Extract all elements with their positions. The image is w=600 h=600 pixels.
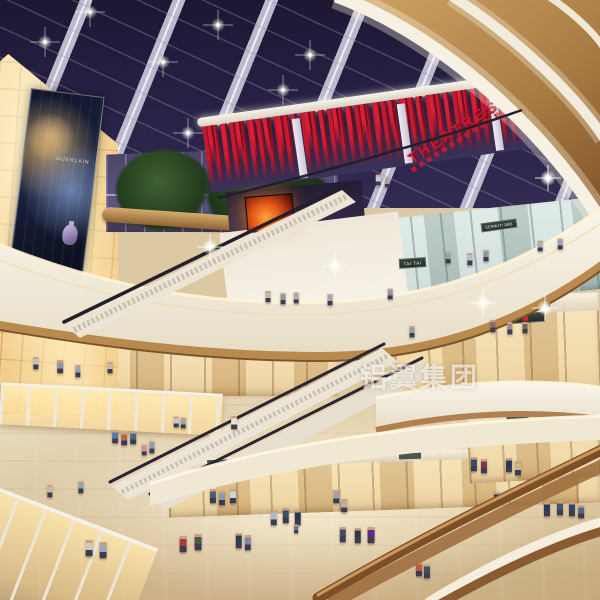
ceiling-light-starburst (268, 75, 298, 105)
ceiling-light-starburst (203, 10, 233, 40)
right-fashion-shops (392, 292, 600, 401)
led-movie-screen (245, 193, 296, 233)
store-sign-tai-tai: TAI TAI (399, 257, 427, 269)
store-sign-text: CERRUTI 1881 (485, 221, 513, 230)
mall-atrium-render: GUERLAIN THEATRES (0, 0, 600, 600)
ceiling-light-starburst (295, 40, 325, 70)
perfume-bottle (61, 224, 78, 246)
red-logo-icon (522, 315, 527, 320)
right-lower-shops (466, 407, 600, 484)
store-sign-cerruti: CERRUTI 1881 (446, 320, 482, 331)
ceiling-light-starburst (148, 47, 178, 77)
ceiling-light-starburst (403, 1, 433, 31)
store-sign-text: TAI TAI (403, 260, 421, 266)
billboard-brand-text: GUERLAIN (56, 156, 90, 166)
store-sign-tai-tai: TAI TAI (404, 329, 429, 339)
ceiling-light-starburst (30, 27, 60, 57)
ceiling-light-starburst (75, 0, 105, 27)
store-sign-text: CERRUTI 1881 (450, 322, 478, 328)
store-sign-text: TAI TAI (407, 332, 425, 337)
